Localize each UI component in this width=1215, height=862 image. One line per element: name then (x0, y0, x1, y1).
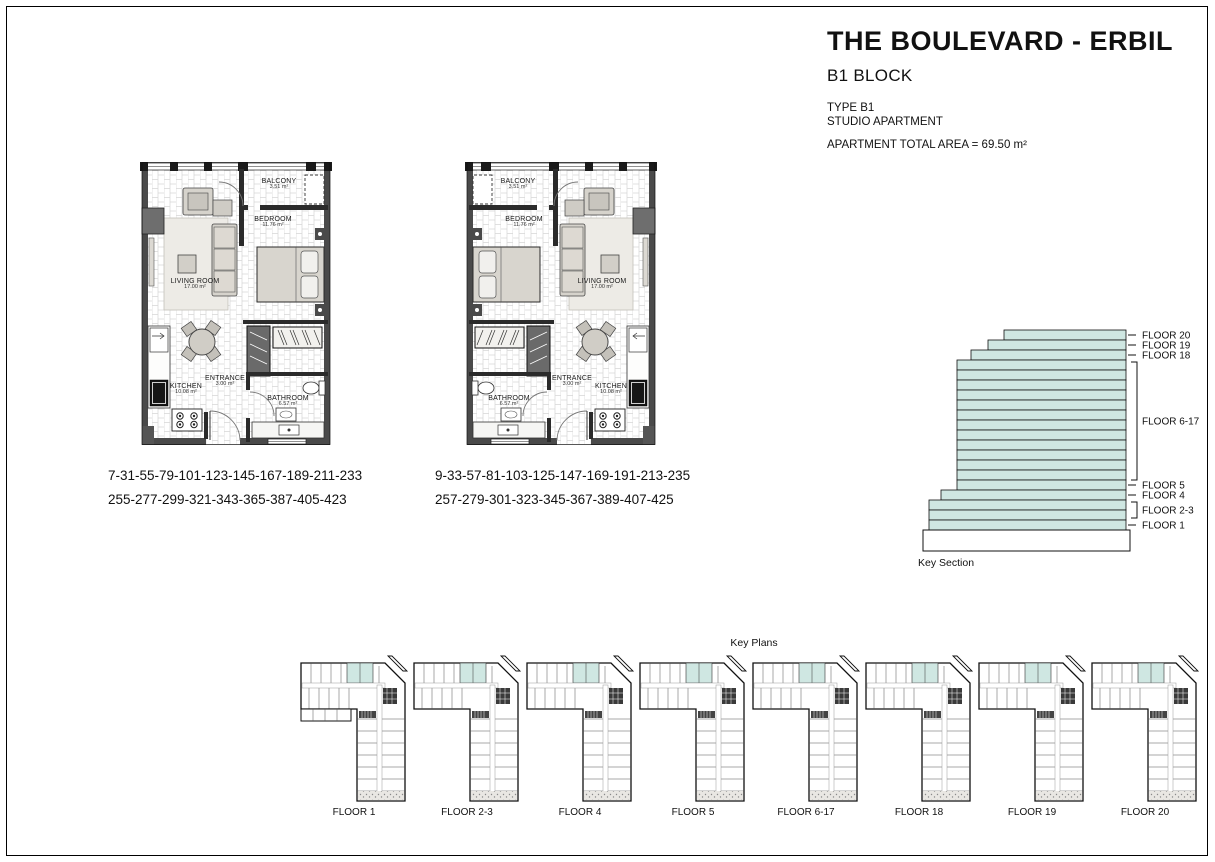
key-section-bracket-6-17 (1131, 362, 1137, 480)
room-label-kitchen: KITCHEN 10.08 m² (595, 383, 627, 396)
key-section-label-floor-18: FLOOR 18 (1142, 351, 1191, 362)
key-plan-label: FLOOR 1 (299, 807, 409, 818)
key-plan-label: FLOOR 2-3 (412, 807, 522, 818)
room-label-balcony: BALCONY 3.51 m² (262, 178, 297, 191)
apartment-numbers-left-line1: 7-31-55-79-101-123-145-167-189-211-233 (108, 464, 362, 488)
unit-plan-right: BALCONY 3.51 m² BEDROOM 11.76 m² LIVING … (465, 160, 657, 448)
key-plans-caption: Key Plans (674, 637, 834, 649)
key-plan-label: FLOOR 5 (638, 807, 748, 818)
apartment-numbers-left: 7-31-55-79-101-123-145-167-189-211-233 2… (108, 464, 362, 512)
key-plan-floor-2-3-drawing (412, 655, 522, 803)
key-section-base (923, 530, 1130, 551)
key-plan-label: FLOOR 19 (977, 807, 1087, 818)
key-plan-floor-6-17-drawing (751, 655, 861, 803)
key-section-label-floor-4: FLOOR 4 (1142, 491, 1185, 502)
key-plan-label: FLOOR 18 (864, 807, 974, 818)
key-section-ticks (1128, 335, 1136, 525)
key-plan-floor-18-drawing (864, 655, 974, 803)
key-section-bracket-2-3 (1131, 502, 1137, 518)
unit-plan-left: BALCONY 3.51 m² BEDROOM 11.76 m² LIVING … (140, 160, 332, 448)
key-plan-floor-2-3: FLOOR 2-3 (412, 655, 522, 818)
room-label-entrance: ENTRANCE 3.00 m² (552, 375, 592, 388)
key-plan-floor-4: FLOOR 4 (525, 655, 635, 818)
key-section-label-floor-1: FLOOR 1 (1142, 521, 1185, 532)
key-plan-floor-1-drawing (299, 655, 409, 803)
title-block: THE BOULEVARD - ERBIL B1 BLOCK TYPE B1 S… (827, 26, 1197, 151)
key-plan-floor-20-drawing (1090, 655, 1200, 803)
apartment-numbers-right-line2: 257-279-301-323-345-367-389-407-425 (435, 488, 690, 512)
apartment-numbers-left-line2: 255-277-299-321-343-365-387-405-423 (108, 488, 362, 512)
key-plan-floor-19: FLOOR 19 (977, 655, 1087, 818)
key-plan-floor-5: FLOOR 5 (638, 655, 748, 818)
key-section-label-floor-6-17: FLOOR 6-17 (1142, 417, 1200, 428)
apartment-numbers-right-line1: 9-33-57-81-103-125-147-169-191-213-235 (435, 464, 690, 488)
key-section-diagram: FLOOR 20 FLOOR 19 FLOOR 18 FLOOR 6-17 FL… (910, 322, 1210, 560)
room-label-bathroom: BATHROOM 6.57 m² (488, 395, 530, 408)
block-name: B1 BLOCK (827, 66, 1197, 86)
room-label-kitchen: KITCHEN 10.08 m² (170, 383, 202, 396)
room-label-bedroom: BEDROOM 11.76 m² (254, 216, 292, 229)
key-section-caption: Key Section (918, 557, 974, 569)
key-plan-floor-4-drawing (525, 655, 635, 803)
key-plan-floor-20: FLOOR 20 (1090, 655, 1200, 818)
apartment-type-line2: STUDIO APARTMENT (827, 116, 1197, 130)
key-plan-label: FLOOR 6-17 (751, 807, 861, 818)
room-label-entrance: ENTRANCE 3.00 m² (205, 375, 245, 388)
key-plan-label: FLOOR 20 (1090, 807, 1200, 818)
room-label-balcony: BALCONY 3.51 m² (501, 178, 536, 191)
key-section-label-floor-2-3: FLOOR 2-3 (1142, 506, 1194, 517)
apartment-type: TYPE B1 STUDIO APARTMENT (827, 102, 1197, 129)
apartment-type-line1: TYPE B1 (827, 102, 1197, 116)
key-plan-floor-19-drawing (977, 655, 1087, 803)
key-section-floors (929, 330, 1126, 530)
apartment-numbers-right: 9-33-57-81-103-125-147-169-191-213-235 2… (435, 464, 690, 512)
room-label-living-room: LIVING ROOM 17.00 m² (171, 278, 220, 291)
room-label-bedroom: BEDROOM 11.76 m² (505, 216, 543, 229)
apartment-total-area: APARTMENT TOTAL AREA = 69.50 m² (827, 139, 1197, 151)
key-plan-label: FLOOR 4 (525, 807, 635, 818)
key-plan-floor-1: FLOOR 1 (299, 655, 409, 818)
project-title: THE BOULEVARD - ERBIL (827, 26, 1197, 57)
room-label-living-room: LIVING ROOM 17.00 m² (578, 278, 627, 291)
key-plan-floor-6-17: FLOOR 6-17 (751, 655, 861, 818)
key-plan-floor-18: FLOOR 18 (864, 655, 974, 818)
room-label-bathroom: BATHROOM 6.57 m² (267, 395, 309, 408)
key-plan-floor-5-drawing (638, 655, 748, 803)
